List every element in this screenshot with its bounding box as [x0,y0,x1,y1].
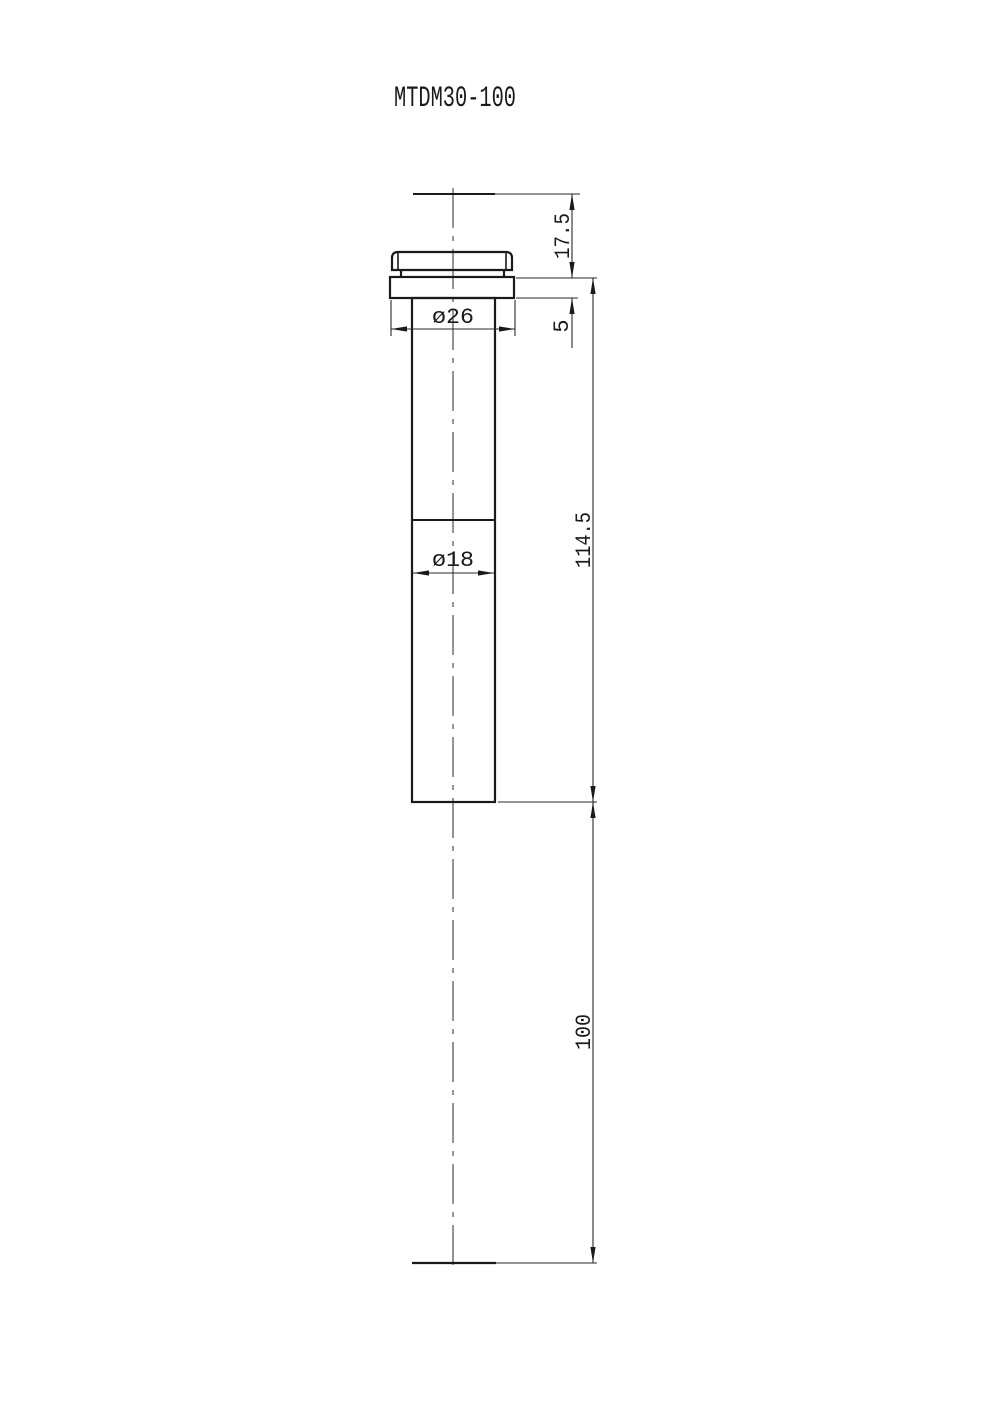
body-diameter-dim-text: ø18 [432,548,474,573]
drawing-sheet: MTDM30-100 [0,0,992,1403]
arrow-down-icon [590,1247,595,1263]
top-clearance-dim-text: 17.5 [551,213,576,259]
arrow-left-icon [391,326,407,331]
cap-outline [392,252,512,270]
arrow-left-icon [413,570,429,575]
travel-dim-text: 100 [572,1014,597,1050]
technical-drawing: MTDM30-100 [0,0,992,1403]
flange-outline [390,277,514,298]
dimension-flange-thickness: 5 [550,298,575,348]
dimension-flange-diameter: ø26 [391,305,515,332]
body-length-dim-text: 114.5 [572,512,597,568]
part-outline [390,194,597,1263]
drawing-title: MTDM30-100 [394,82,516,116]
arrow-down-icon [569,262,574,278]
arrow-up-icon [569,194,574,210]
flange-diameter-dim-text: ø26 [432,305,474,330]
arrow-up-icon [569,298,574,314]
arrow-down-icon [590,786,595,802]
arrow-up-icon [590,278,595,294]
arrow-right-icon [478,570,494,575]
arrow-up-icon [590,802,595,818]
dimension-body-length: 114.5 [572,278,597,1263]
dimension-body-diameter: ø18 [413,548,494,576]
dimension-top-clearance: 17.5 [551,194,576,278]
arrow-right-icon [499,326,515,331]
flange-thickness-dim-text: 5 [550,319,575,332]
